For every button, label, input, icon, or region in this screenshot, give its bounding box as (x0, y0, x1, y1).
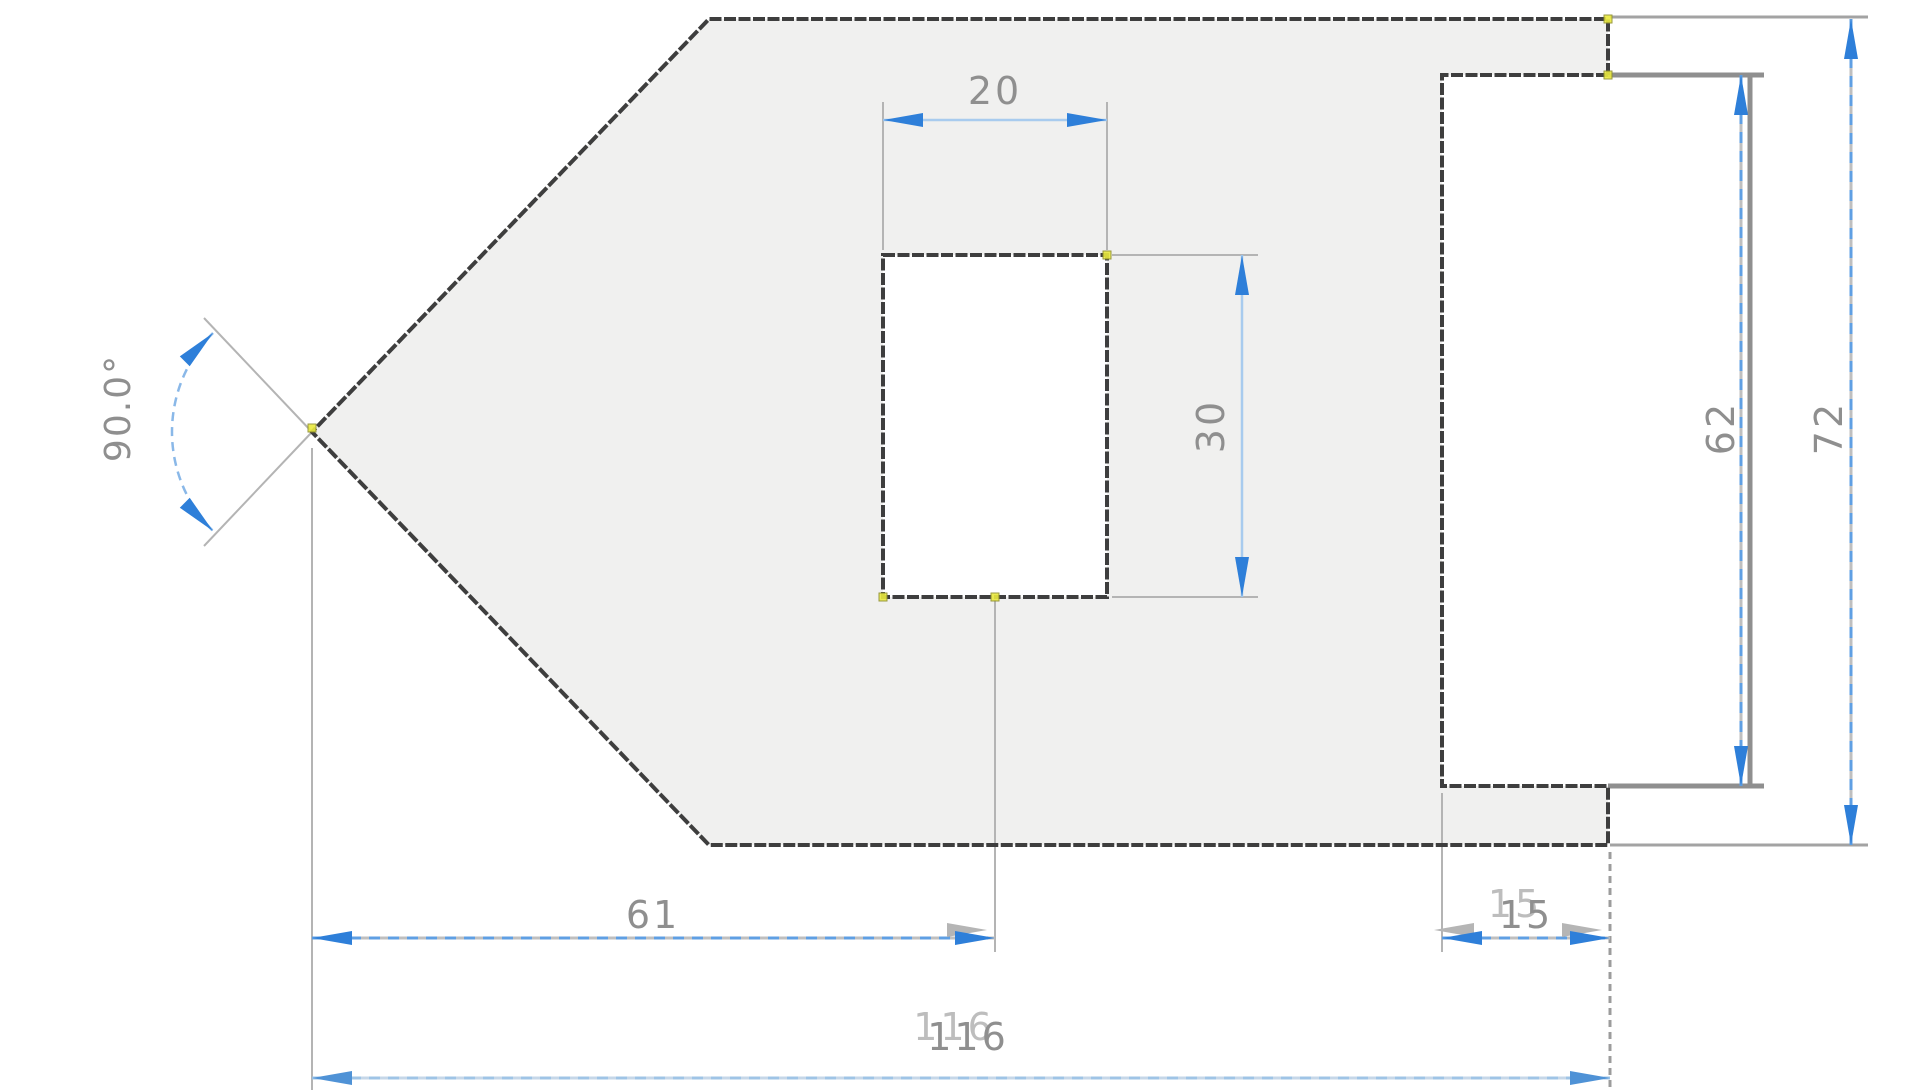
constraint-marker-left-vertex (308, 424, 316, 432)
dim-116-value[interactable]: 116 (927, 1015, 1009, 1059)
dim-30-value[interactable]: 30 (1189, 399, 1233, 453)
dim-72-value[interactable]: 72 (1807, 401, 1851, 455)
inner-rect-fill (883, 255, 1107, 597)
dim-angle-value[interactable]: 90.0° (98, 354, 139, 462)
dim-15-value[interactable]: 15 (1499, 893, 1553, 937)
cad-sketch-canvas: 20 30 90.0° 61 15 15 (0, 0, 1920, 1092)
constraint-marker-inner-bottom-center (991, 593, 999, 601)
dim-61-value[interactable]: 61 (626, 893, 680, 937)
constraint-marker-top-right (1604, 15, 1612, 23)
constraint-marker-inner-bottom-left (879, 593, 887, 601)
dim-62-value[interactable]: 62 (1699, 401, 1743, 455)
dim-20-value[interactable]: 20 (968, 69, 1022, 113)
constraint-marker-rect-top (1604, 71, 1612, 79)
constraint-marker-inner-top-right (1103, 251, 1111, 259)
